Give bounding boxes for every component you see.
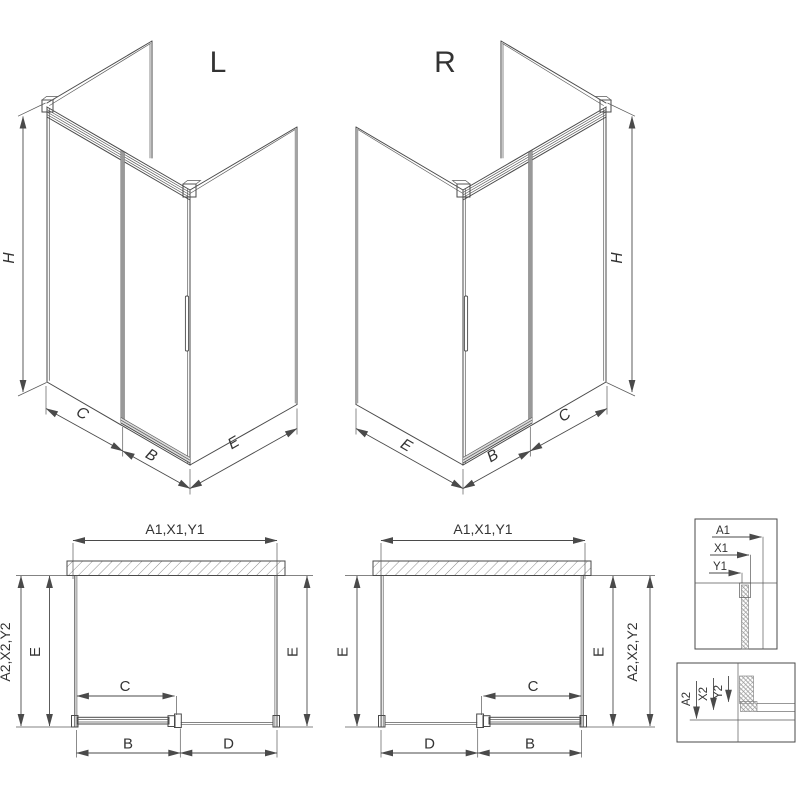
- iso-view-left: L: [1, 41, 297, 495]
- dim-label-e-right: E: [285, 647, 302, 657]
- dim-label-a1-right-plan: A1,X1,Y1: [453, 521, 512, 537]
- detail-label-y2: Y2: [713, 685, 725, 699]
- bottom-rail-section: [741, 702, 758, 712]
- dim-label-a1-left-plan: A1,X1,Y1: [145, 521, 204, 537]
- door-glass-edge-strip: [528, 151, 532, 425]
- detail-label-y1: Y1: [713, 561, 727, 573]
- wall-hatched: [373, 561, 591, 576]
- dim-label-height-right: H: [609, 252, 626, 264]
- back-side-panel-right: [501, 41, 606, 158]
- dim-label-door-right: B: [484, 446, 501, 466]
- detail-wall-profile: A1 X1 Y1: [695, 519, 777, 649]
- detail-bottom-rail: A2 X2 Y2: [677, 663, 795, 742]
- front-door-wall-right: [463, 107, 606, 465]
- dim-label-b-plan-right: B: [525, 736, 535, 753]
- return-side-panel-right: [356, 127, 463, 465]
- dimensions-iso-right: H E B C: [356, 103, 635, 495]
- dim-label-fixed-right: C: [556, 405, 575, 426]
- front-door-wall-left: [47, 107, 190, 465]
- dim-label-a2-right-plan: A2,X2,Y2: [624, 622, 640, 681]
- dim-label-e-left: E: [335, 647, 352, 657]
- dim-label-d-plan-right: D: [424, 736, 435, 753]
- door-glass-edge-strip: [121, 151, 125, 425]
- door-handle: [185, 296, 188, 351]
- dim-label-a2-left-plan: A2,X2,Y2: [0, 622, 13, 681]
- glass-edge-hatched: [742, 585, 749, 649]
- wall-hatched: [67, 561, 285, 576]
- plan-view-right: A1,X1,Y1 E E A2,X2,Y2 C D B: [335, 521, 656, 758]
- return-side-panel-left: [190, 127, 297, 465]
- dim-label-e-right: E: [591, 647, 608, 657]
- glass-panels-plan: [379, 576, 587, 728]
- shower-enclosure-technical-drawing: L: [0, 0, 800, 800]
- detail-label-x2: X2: [698, 687, 710, 701]
- detail-label-a1: A1: [716, 525, 730, 537]
- dim-label-height-left: H: [1, 252, 18, 264]
- glass-edge-hatched: [740, 676, 754, 704]
- dim-label-c-plan-left: C: [120, 678, 131, 695]
- dim-label-e-left: E: [27, 647, 44, 657]
- door-handle: [464, 296, 467, 351]
- detail-label-a2: A2: [681, 692, 693, 706]
- dim-label-door-left: B: [143, 446, 160, 466]
- variant-label-right: R: [434, 46, 456, 79]
- iso-view-right: R: [356, 41, 635, 495]
- dim-label-d-plan-left: D: [223, 736, 234, 753]
- dim-label-b-plan-left: B: [123, 736, 133, 753]
- glass-panels-plan: [72, 576, 280, 728]
- back-side-panel-left: [47, 41, 152, 158]
- sliding-door-plan: [77, 714, 181, 728]
- drawing-page: L: [0, 0, 800, 800]
- sliding-door-plan: [477, 714, 581, 728]
- detail-label-x1: X1: [714, 543, 728, 555]
- plan-view-left: A1,X1,Y1 A2,X2,Y2 E E C B D: [0, 521, 313, 758]
- dim-label-side-left: E: [225, 433, 243, 453]
- variant-label-left: L: [210, 46, 227, 79]
- dim-label-c-plan-right: C: [528, 678, 539, 695]
